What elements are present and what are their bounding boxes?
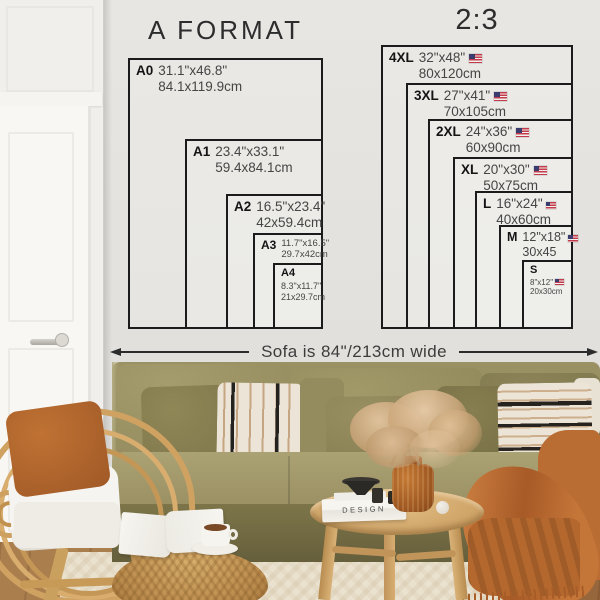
us-flag-icon bbox=[469, 54, 482, 63]
door-top-frame bbox=[0, 92, 102, 106]
door-handle-rosette bbox=[55, 333, 69, 347]
size-label: A4 bbox=[281, 267, 295, 279]
us-flag-icon bbox=[555, 279, 564, 285]
us-flag-icon bbox=[568, 235, 578, 242]
size-box-s: S 8"x12" 20x30cm bbox=[522, 260, 573, 329]
size-inches: 24"x36" bbox=[466, 124, 512, 139]
size-cm: 30x45 bbox=[522, 245, 578, 260]
size-inches: 11.7"x16.5" bbox=[281, 238, 329, 249]
dried-flowers bbox=[410, 430, 460, 468]
size-box-a4: A4 8.3"x11.7" 21x29.7cm bbox=[273, 263, 323, 329]
sofa-width-arrow: Sofa is 84"/213cm wide bbox=[110, 342, 598, 362]
us-flag-icon bbox=[516, 128, 529, 137]
arrow-right-icon bbox=[587, 348, 598, 356]
size-cm: 60x90cm bbox=[466, 140, 529, 156]
size-inches: 32"x48" bbox=[419, 50, 465, 65]
us-flag-icon bbox=[546, 202, 556, 209]
size-label: A1 bbox=[193, 144, 210, 176]
poster-size-guide-image: A FORMAT 2:3 A0 31.1"x46.8" 84.1x119.9cm… bbox=[0, 0, 600, 600]
size-label: A3 bbox=[261, 238, 276, 260]
sofa-width-label: Sofa is 84"/213cm wide bbox=[261, 342, 447, 362]
size-cm: 80x120cm bbox=[419, 66, 482, 82]
size-inches: 27"x41" bbox=[444, 88, 490, 103]
size-cm: 21x29.7cm bbox=[281, 292, 319, 303]
a-format-title: A FORMAT bbox=[103, 15, 348, 46]
seat-seam bbox=[288, 456, 290, 506]
design-book-spine-label: DESIGN bbox=[342, 504, 386, 515]
size-inches: 20"x30" bbox=[483, 162, 529, 177]
size-label: L bbox=[483, 196, 491, 228]
amber-glass-vase bbox=[392, 464, 434, 512]
decor-ball bbox=[436, 501, 449, 514]
coffee-surface bbox=[204, 524, 227, 531]
candle-holder bbox=[372, 488, 383, 503]
size-inches: 8.3"x11.7" bbox=[281, 281, 319, 292]
size-inches: 31.1"x46.8" bbox=[158, 63, 242, 79]
size-inches: 23.4"x33.1" bbox=[215, 144, 292, 160]
size-label: A0 bbox=[136, 63, 153, 95]
size-label: M bbox=[507, 230, 517, 260]
us-flag-icon bbox=[494, 92, 507, 101]
size-cm: 42x59.4cm bbox=[256, 215, 325, 231]
size-label: 3XL bbox=[414, 88, 439, 120]
size-inches: 16"x24" bbox=[496, 196, 542, 211]
size-label: 4XL bbox=[389, 50, 414, 82]
size-inches: 12"x18" bbox=[522, 230, 565, 244]
cup-handle bbox=[228, 529, 238, 540]
size-label: S bbox=[530, 264, 537, 276]
rust-pillow bbox=[4, 400, 111, 499]
size-label: A2 bbox=[234, 199, 251, 231]
size-label: 2XL bbox=[436, 124, 461, 156]
ratio-2-3-title: 2:3 bbox=[381, 4, 573, 37]
table-leg bbox=[384, 534, 395, 600]
size-inches: 8"x12" bbox=[530, 278, 553, 287]
us-flag-icon bbox=[534, 166, 547, 175]
arrow-line bbox=[459, 351, 587, 353]
arrow-line bbox=[121, 351, 249, 353]
wall-panel-molding bbox=[6, 6, 94, 92]
size-cm: 84.1x119.9cm bbox=[158, 79, 242, 95]
size-cm: 20x30cm bbox=[530, 287, 569, 296]
size-cm: 70x105cm bbox=[444, 104, 507, 120]
chair-cushion-front bbox=[14, 502, 120, 548]
size-cm: 59.4x84.1cm bbox=[215, 160, 292, 176]
door-upper-panel bbox=[8, 132, 74, 322]
throw-blanket-folds bbox=[468, 518, 580, 596]
size-cm: 29.7x42cm bbox=[281, 249, 329, 260]
size-inches: 16.5"x23.4" bbox=[256, 199, 325, 215]
arrow-left-icon bbox=[110, 348, 121, 356]
size-label: XL bbox=[461, 162, 478, 194]
